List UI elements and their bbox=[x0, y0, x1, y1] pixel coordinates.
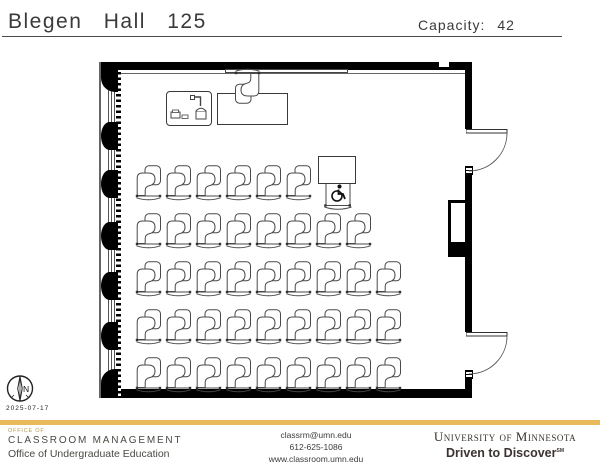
wall-top-gap bbox=[439, 62, 449, 67]
student-chair bbox=[135, 261, 162, 298]
instructor-chair bbox=[234, 67, 261, 104]
wall-pier bbox=[101, 322, 118, 350]
student-chair bbox=[255, 165, 282, 202]
podium bbox=[166, 91, 212, 126]
north-label: N bbox=[23, 384, 29, 394]
wall-pier bbox=[101, 170, 118, 198]
floor-plan-sheet: Blegen Hall 125 Capacity:42 bbox=[0, 0, 600, 464]
student-chair bbox=[195, 165, 222, 202]
student-chair bbox=[345, 309, 372, 346]
student-chair bbox=[195, 309, 222, 346]
contact-phone: 612-625-1086 bbox=[246, 441, 386, 453]
student-chair bbox=[285, 309, 312, 346]
student-chair bbox=[165, 213, 192, 250]
student-chair bbox=[285, 165, 312, 202]
student-chair bbox=[135, 165, 162, 202]
student-chair bbox=[165, 357, 192, 394]
student-chair bbox=[345, 357, 372, 394]
contact-web: www.classroom.umn.edu bbox=[246, 453, 386, 464]
office-of-label: OFFICE OF bbox=[8, 429, 182, 435]
wall-recess bbox=[448, 200, 468, 257]
wall-recess-fill bbox=[451, 242, 465, 254]
student-chair bbox=[345, 261, 372, 298]
north-compass-icon: N bbox=[3, 374, 37, 404]
student-chair bbox=[285, 261, 312, 298]
student-chair bbox=[195, 261, 222, 298]
student-chair bbox=[165, 165, 192, 202]
footer-brand-block: University of Minnesota Driven to Discov… bbox=[420, 429, 590, 460]
wall-top-inner-line bbox=[121, 73, 466, 74]
student-chair bbox=[195, 213, 222, 250]
wall-right-lower bbox=[465, 379, 472, 398]
student-chair bbox=[255, 261, 282, 298]
tagline: Driven to DiscoverSM bbox=[420, 446, 590, 460]
student-chair bbox=[165, 309, 192, 346]
student-chair bbox=[225, 261, 252, 298]
wall-right-upper bbox=[465, 62, 472, 129]
student-chair bbox=[135, 357, 162, 394]
wheelchair-icon bbox=[332, 185, 345, 202]
wall-left-outer-line bbox=[99, 62, 101, 398]
undergraduate-education-label: Office of Undergraduate Education bbox=[8, 449, 182, 460]
student-chair bbox=[255, 309, 282, 346]
student-chair bbox=[315, 357, 342, 394]
student-chair bbox=[375, 357, 402, 394]
door-upper bbox=[466, 129, 514, 175]
student-chair bbox=[375, 309, 402, 346]
student-chair bbox=[285, 357, 312, 394]
podium-equipment bbox=[167, 92, 210, 124]
student-chair bbox=[225, 213, 252, 250]
student-chair bbox=[255, 213, 282, 250]
service-mark: SM bbox=[556, 448, 564, 454]
student-chair bbox=[225, 309, 252, 346]
student-chair bbox=[135, 213, 162, 250]
contact-email: classrm@umn.edu bbox=[246, 429, 386, 441]
student-chair bbox=[165, 261, 192, 298]
floor-plan: N 2025-07-17 bbox=[0, 0, 600, 420]
door-lower bbox=[466, 332, 514, 378]
student-chair bbox=[225, 357, 252, 394]
student-chair bbox=[375, 261, 402, 298]
document-camera-icon bbox=[191, 96, 207, 120]
student-chair bbox=[135, 309, 162, 346]
student-chair bbox=[315, 213, 342, 250]
student-chair bbox=[315, 309, 342, 346]
student-chair bbox=[195, 357, 222, 394]
wall-pier bbox=[101, 272, 118, 300]
wall-pier bbox=[101, 122, 118, 150]
accessible-seat bbox=[322, 182, 354, 212]
student-chair bbox=[255, 357, 282, 394]
footer-office-block: OFFICE OF CLASSROOM MANAGEMENT Office of… bbox=[8, 429, 182, 460]
student-chair bbox=[315, 261, 342, 298]
student-chair bbox=[225, 165, 252, 202]
footer-accent-bar bbox=[0, 420, 600, 425]
wall-pier bbox=[101, 369, 118, 398]
student-chair bbox=[285, 213, 312, 250]
plan-date: 2025-07-17 bbox=[6, 405, 49, 412]
wall-pier bbox=[101, 62, 118, 92]
classroom-management-label: CLASSROOM MANAGEMENT bbox=[8, 436, 182, 446]
wall-pier bbox=[101, 222, 118, 250]
student-chair bbox=[345, 213, 372, 250]
accessible-table bbox=[318, 156, 356, 184]
footer-contact-block: classrm@umn.edu 612-625-1086 www.classro… bbox=[246, 429, 386, 464]
university-wordmark: University of Minnesota bbox=[420, 429, 590, 445]
